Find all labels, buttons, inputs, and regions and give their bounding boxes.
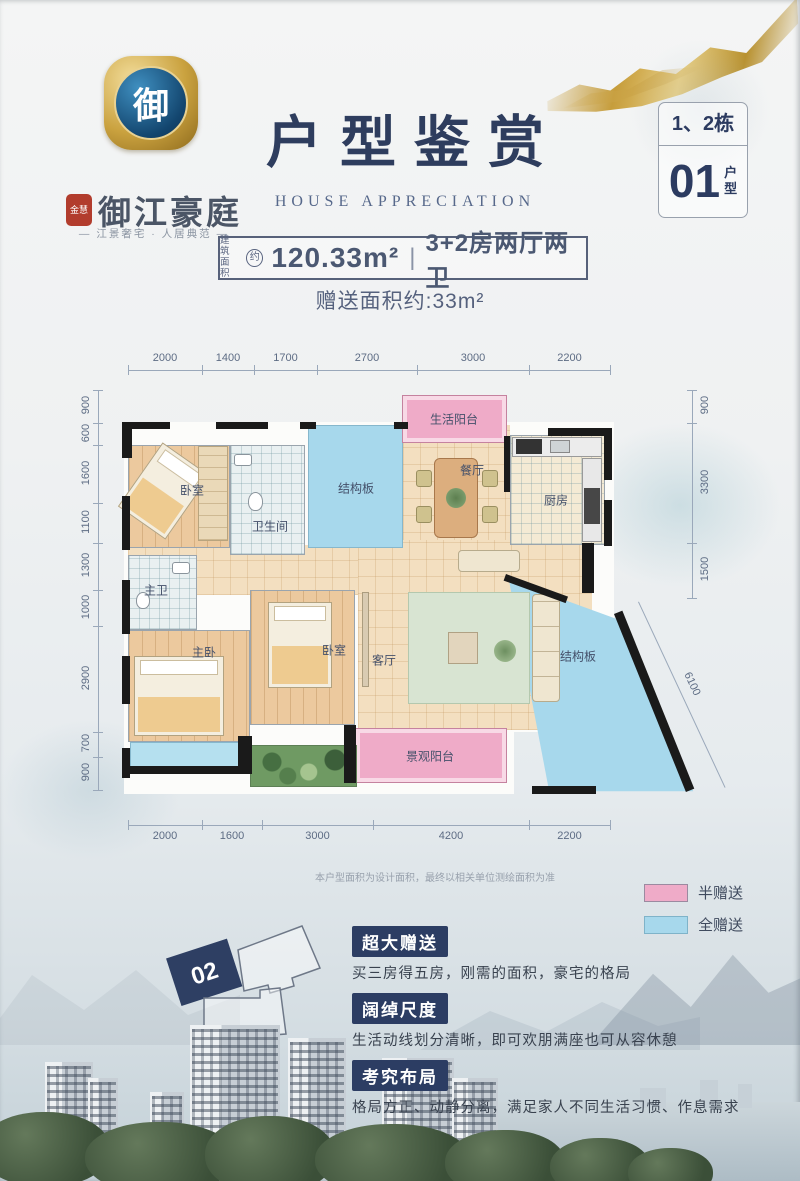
dim-tick	[417, 365, 418, 375]
dim-left: 2900	[80, 658, 92, 698]
dim-top: 2000	[128, 352, 202, 364]
dim-right: 900	[699, 385, 711, 425]
building-label: 1、2栋	[659, 103, 747, 146]
dim-tick	[687, 423, 697, 424]
wall	[122, 656, 130, 704]
tv-cabinet	[362, 592, 369, 687]
label-slab1: 结构板	[338, 480, 374, 497]
sofa	[532, 594, 560, 702]
chair	[416, 506, 432, 523]
unit-word: 户 型	[724, 165, 737, 198]
bed-master	[134, 656, 224, 736]
dim-left: 900	[80, 752, 92, 792]
sofa-bench	[458, 550, 520, 572]
title-block: 户型鉴赏 HOUSE APPRECIATION	[235, 98, 575, 211]
dim-left: 600	[80, 413, 92, 453]
feature-item: 超大赠送 买三房得五房，刚需的面积，豪宅的格局	[352, 926, 788, 983]
wall	[532, 786, 596, 794]
dim-line	[128, 825, 610, 826]
dim-tick	[529, 365, 530, 375]
feature-desc: 买三房得五房，刚需的面积，豪宅的格局	[352, 962, 788, 983]
wall	[300, 422, 316, 429]
dim-left: 1300	[80, 545, 92, 585]
toilet	[248, 492, 263, 511]
wall	[124, 766, 248, 774]
dim-tick	[128, 365, 129, 375]
dim-top: 3000	[417, 352, 529, 364]
label-living: 客厅	[372, 652, 396, 669]
gift-area-line: 赠送面积约:33m²	[250, 285, 550, 315]
feature-item: 考究布局 格局方正、动静分离，满足家人不同生活习惯、作息需求	[352, 1060, 788, 1117]
disclaimer-note: 本户型面积为设计面积，最终以相关单位测绘面积为准	[275, 869, 595, 884]
kitchen-sink	[550, 440, 570, 453]
washbasin	[172, 562, 190, 574]
dim-left: 1600	[80, 453, 92, 493]
washbasin	[234, 454, 252, 466]
wall	[504, 436, 510, 492]
table-centerpiece	[446, 488, 466, 508]
label-view-balcony: 景观阳台	[406, 748, 454, 765]
wall	[124, 422, 170, 429]
label-master-bedroom: 主卧	[192, 644, 216, 661]
unit-type-box: 1、2栋 01 户 型	[658, 102, 748, 218]
wall	[582, 543, 594, 593]
brand-emblem: 御	[104, 56, 198, 150]
label-kitchen: 厨房	[544, 492, 568, 509]
label-slab2: 结构板	[560, 648, 596, 665]
feature-item: 阔绰尺度 生活动线划分清晰，即可欢朋满座也可从容休憩	[352, 993, 788, 1050]
dim-tick	[93, 390, 103, 391]
dim-top: 1400	[202, 352, 254, 364]
dim-left: 1000	[80, 587, 92, 627]
legend-half-gift: 半赠送	[644, 882, 743, 903]
dim-tick	[93, 757, 103, 758]
dim-bottom: 3000	[262, 830, 373, 842]
kitchen-appliance	[516, 439, 542, 454]
dim-tick	[529, 820, 530, 830]
feature-badge: 考究布局	[352, 1060, 448, 1091]
dim-tick	[93, 423, 103, 424]
layout-value: 3+2房两厅两卫	[425, 223, 586, 293]
dim-bottom: 2200	[529, 830, 610, 842]
area-value: 120.33m²	[271, 242, 399, 274]
tree	[205, 1116, 335, 1181]
dim-tick	[93, 790, 103, 791]
chair	[482, 506, 498, 523]
chair	[482, 470, 498, 487]
dim-tick	[93, 445, 103, 446]
wall	[394, 422, 408, 429]
wall	[604, 500, 612, 546]
feature-desc: 生活动线划分清晰，即可欢朋满座也可从容休憩	[352, 1029, 788, 1050]
dim-tick	[687, 390, 697, 391]
unit-number-row: 01 户 型	[659, 146, 747, 216]
area-label: 建筑 面积	[220, 236, 238, 280]
dim-tick	[254, 365, 255, 375]
dim-right: 1500	[699, 549, 711, 589]
label-master-bath: 主卫	[144, 582, 168, 599]
dim-line	[128, 370, 610, 371]
wall	[216, 422, 268, 429]
feature-desc: 格局方正、动静分离，满足家人不同生活习惯、作息需求	[352, 1096, 788, 1117]
approx-circle: 约	[246, 249, 263, 267]
wall	[604, 434, 612, 480]
brand-emblem-character: 御	[114, 66, 188, 140]
dim-tick	[610, 365, 611, 375]
dim-bottom: 1600	[202, 830, 262, 842]
wall	[122, 580, 130, 634]
dim-tick	[93, 732, 103, 733]
dim-tick	[202, 820, 203, 830]
legend-swatch-pink	[644, 884, 688, 902]
dim-bottom: 2000	[128, 830, 202, 842]
poster: 御 金慧 御江豪庭 — 江景奢宅 · 人居典范 — 户型鉴赏 HOUSE APP…	[0, 0, 800, 1181]
dim-tick	[687, 543, 697, 544]
dim-top: 2200	[529, 352, 610, 364]
dim-tick	[373, 820, 374, 830]
brand-seal: 金慧	[66, 194, 92, 226]
dim-tick	[610, 820, 611, 830]
feature-list: 超大赠送 买三房得五房，刚需的面积，豪宅的格局 阔绰尺度 生活动线划分清晰，即可…	[352, 926, 788, 1127]
siteplan-highlight-block: 02	[166, 939, 242, 1006]
dim-right: 3300	[699, 462, 711, 502]
wall	[122, 496, 130, 550]
plant-pot	[494, 640, 516, 662]
label-bathroom: 卫生间	[252, 518, 288, 535]
area-summary-bar: 建筑 面积 约 120.33m² | 3+2房两厅两卫	[218, 236, 588, 280]
planting-strip	[250, 745, 357, 787]
dim-tick	[128, 820, 129, 830]
feature-badge: 超大赠送	[352, 926, 448, 957]
floorplan: 2000 1400 1700 2700 3000 2200 2000 1600 …	[80, 340, 740, 860]
dim-tick	[202, 365, 203, 375]
wall	[344, 725, 356, 783]
dim-tick	[93, 590, 103, 591]
dim-tick	[93, 503, 103, 504]
dim-tick	[262, 820, 263, 830]
dim-line	[692, 390, 693, 598]
dim-tick	[317, 365, 318, 375]
label-bedroom2: 卧室	[322, 642, 346, 659]
page-subtitle: HOUSE APPRECIATION	[235, 193, 575, 211]
label-bedroom1: 卧室	[180, 482, 204, 499]
dim-bottom: 4200	[373, 830, 529, 842]
dim-tick	[687, 598, 697, 599]
divider: |	[409, 244, 415, 272]
stove	[584, 488, 600, 524]
dim-tick	[93, 543, 103, 544]
dim-top: 1700	[254, 352, 317, 364]
unit-number: 01	[669, 146, 720, 216]
dim-top: 2700	[317, 352, 417, 364]
feature-badge: 阔绰尺度	[352, 993, 448, 1024]
label-dining: 餐厅	[460, 462, 484, 479]
label-life-balcony: 生活阳台	[430, 411, 478, 428]
dim-tick	[93, 626, 103, 627]
siteplan-outline-wing	[238, 926, 320, 993]
wall	[548, 428, 612, 436]
page-title: 户型鉴赏	[235, 98, 575, 179]
chair	[416, 470, 432, 487]
coffee-table	[448, 632, 478, 664]
dim-left: 1100	[80, 502, 92, 542]
